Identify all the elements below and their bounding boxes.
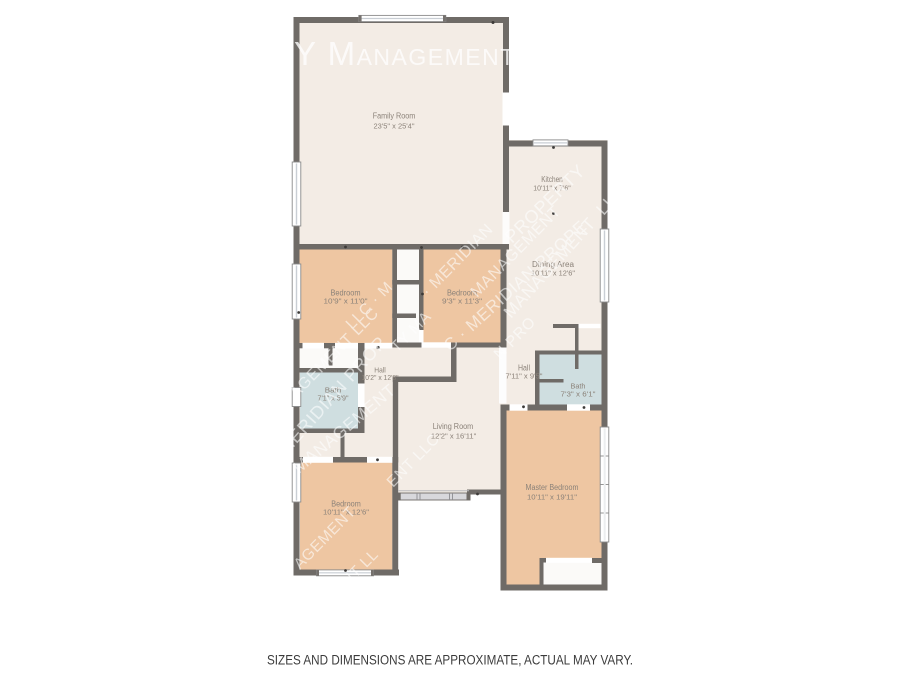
svg-text:23'5" x 25'4": 23'5" x 25'4": [374, 122, 415, 131]
svg-text:Hall: Hall: [518, 364, 530, 373]
svg-text:Bath: Bath: [571, 382, 586, 391]
svg-text:7'3" x 6'1": 7'3" x 6'1": [561, 392, 597, 399]
svg-text:Hall: Hall: [374, 366, 386, 375]
svg-text:10'2" x 12'8": 10'2" x 12'8": [362, 375, 399, 382]
svg-text:Living Room: Living Room: [433, 422, 474, 431]
svg-text:Y Management: Y Management: [294, 35, 516, 72]
svg-text:SIZES AND DIMENSIONS ARE APPRO: SIZES AND DIMENSIONS ARE APPROXIMATE, AC…: [267, 653, 633, 668]
svg-text:7'11" x 9'5": 7'11" x 9'5": [506, 374, 544, 381]
svg-text:10'11" x 19'11": 10'11" x 19'11": [527, 493, 577, 502]
svg-text:Master Bedroom: Master Bedroom: [526, 483, 579, 492]
svg-text:Family Room: Family Room: [373, 112, 416, 121]
